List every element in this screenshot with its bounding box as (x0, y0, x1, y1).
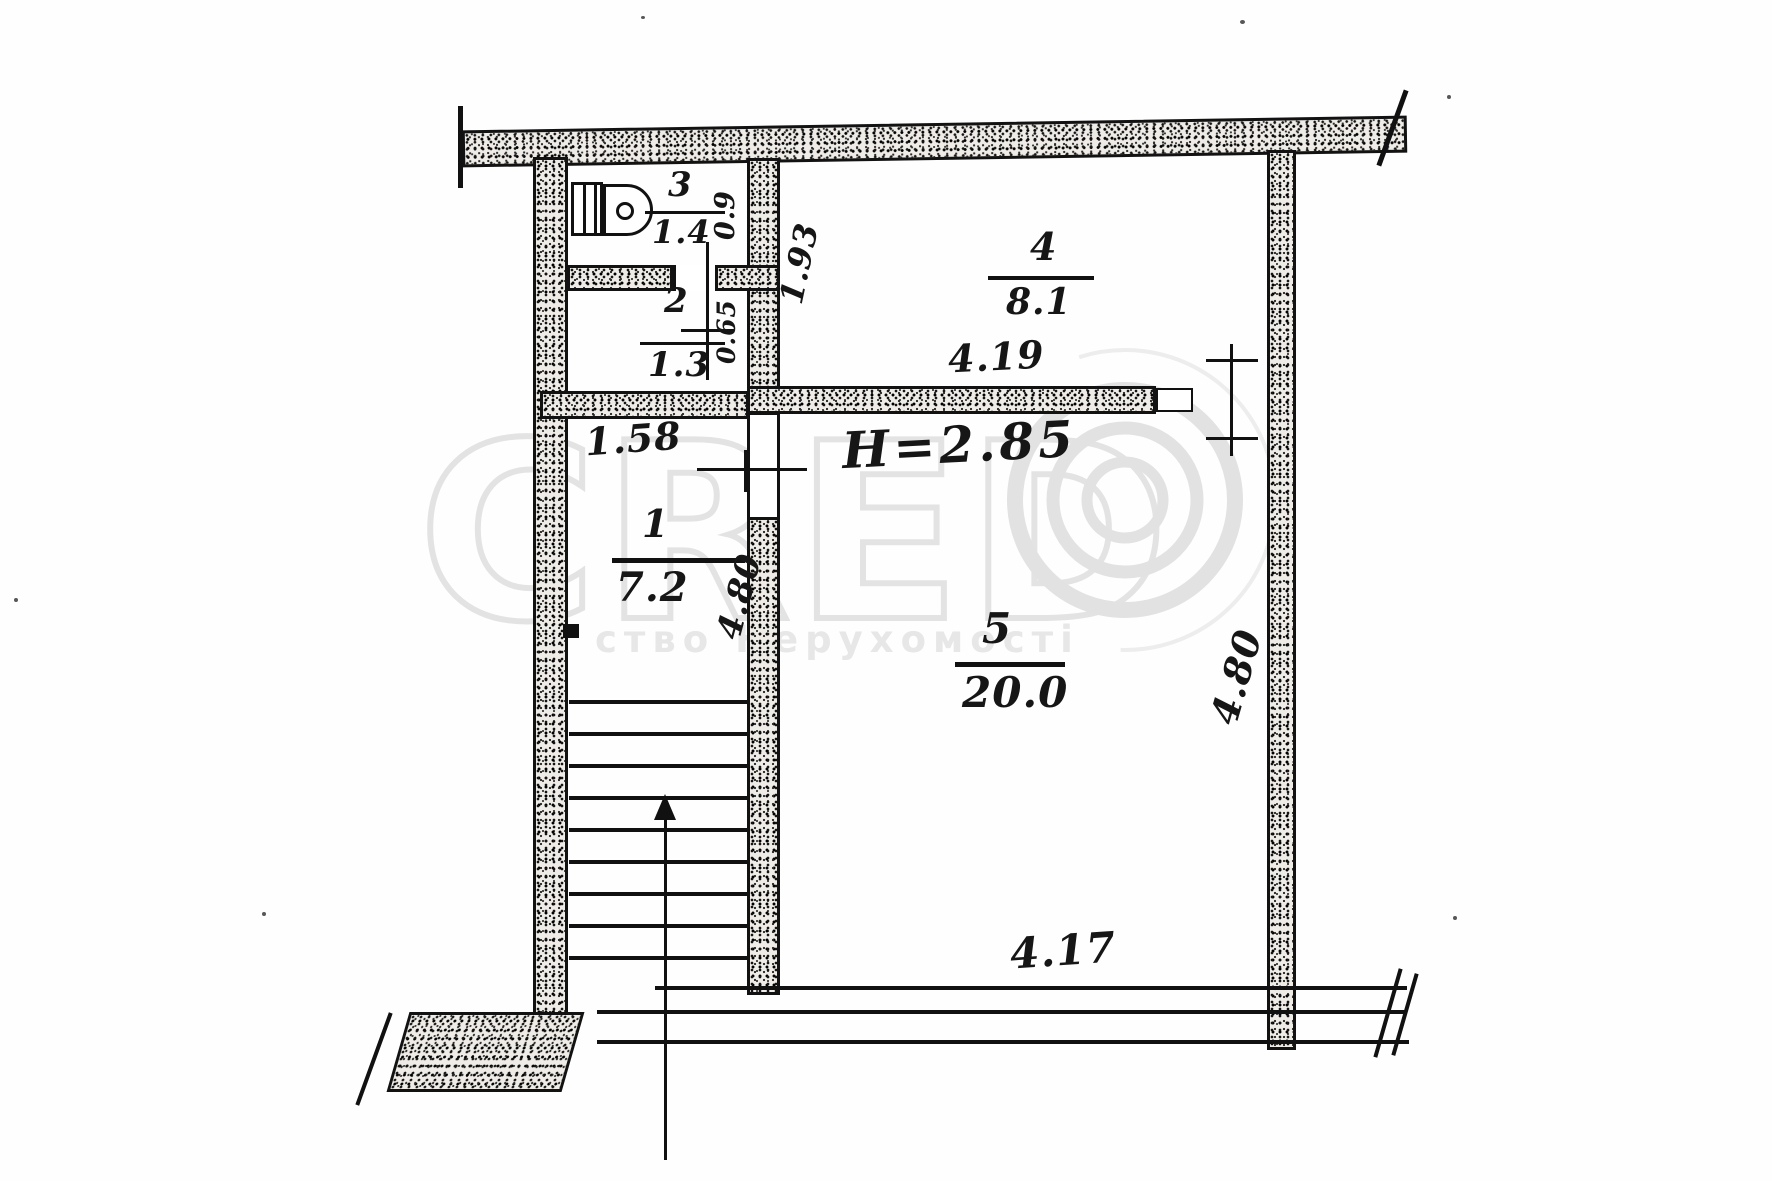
toilet-drain-icon (616, 202, 634, 220)
dim-1-58: 1.58 (584, 417, 683, 462)
scan-speck (641, 16, 645, 19)
stairs-direction-line (664, 818, 667, 1160)
stair-tread (569, 924, 747, 928)
scan-speck (14, 598, 18, 602)
stair-tread (569, 892, 747, 896)
room5-door-opening (747, 415, 780, 517)
bottom-left-wall-block (387, 1012, 585, 1092)
dim-4-19: 4.19 (947, 335, 1045, 378)
room-3-number: 3 (668, 168, 693, 202)
toilet-cistern-icon (571, 182, 603, 236)
room4-door-leaf (1156, 388, 1193, 412)
bottom-slab-line-2 (597, 1010, 1407, 1014)
left-wall (533, 157, 568, 1018)
stairs-direction-arrow-icon (654, 794, 676, 820)
room-3-area: 1.4 (652, 216, 711, 248)
credo-watermark: CRED ство Нерухомості (0, 0, 1772, 1181)
toilet-cistern-line (594, 184, 597, 234)
scan-speck (1453, 916, 1457, 920)
scan-speck (1240, 20, 1245, 24)
scan-speck (262, 912, 266, 916)
dim-0-65: 0.65 (714, 299, 739, 364)
room-4-area: 8.1 (1006, 284, 1072, 320)
stair-tread (569, 732, 747, 736)
stair-tread (569, 828, 747, 832)
dim-tick-1-58 (744, 450, 747, 492)
room-1-number: 1 (642, 505, 669, 543)
room-1-divider (612, 558, 745, 563)
stair-tread (569, 700, 747, 704)
wc-partition-right (715, 265, 780, 291)
stair-tread (569, 956, 747, 960)
bottom-slab-line-1 (655, 986, 1407, 990)
room-4-divider (988, 276, 1094, 280)
room-5-area: 20.0 (962, 672, 1068, 714)
room-1-area: 7.2 (616, 568, 689, 608)
wc-partition-left (567, 265, 673, 291)
room4-partition (747, 386, 1156, 414)
right-wall (1267, 150, 1296, 1050)
scan-speck (1447, 95, 1451, 99)
room-5-number: 5 (982, 608, 1012, 650)
room-5-divider (955, 662, 1065, 667)
top-wall-left-cap (458, 106, 463, 188)
floorplan-scan: CRED ство Нерухомості (0, 0, 1772, 1181)
ceiling-height-label: H=2.85 (841, 414, 1078, 476)
dim-0-9: 0.9 (712, 190, 739, 240)
room-4-number: 4 (1030, 228, 1057, 266)
room-2-number: 2 (664, 284, 689, 318)
stair-tread (569, 860, 747, 864)
bottom-slab-line-3 (597, 1040, 1409, 1044)
toilet-cistern-line (583, 184, 586, 234)
dim-line-1-58 (697, 468, 807, 471)
stair-landing-notch (563, 624, 579, 638)
dim-tick-room4-top (1206, 359, 1258, 362)
dim-4-17: 4.17 (1009, 926, 1118, 975)
room-2-area: 1.3 (648, 348, 710, 382)
stair-tread (569, 764, 747, 768)
dim-tick-room4-bottom (1206, 437, 1258, 440)
